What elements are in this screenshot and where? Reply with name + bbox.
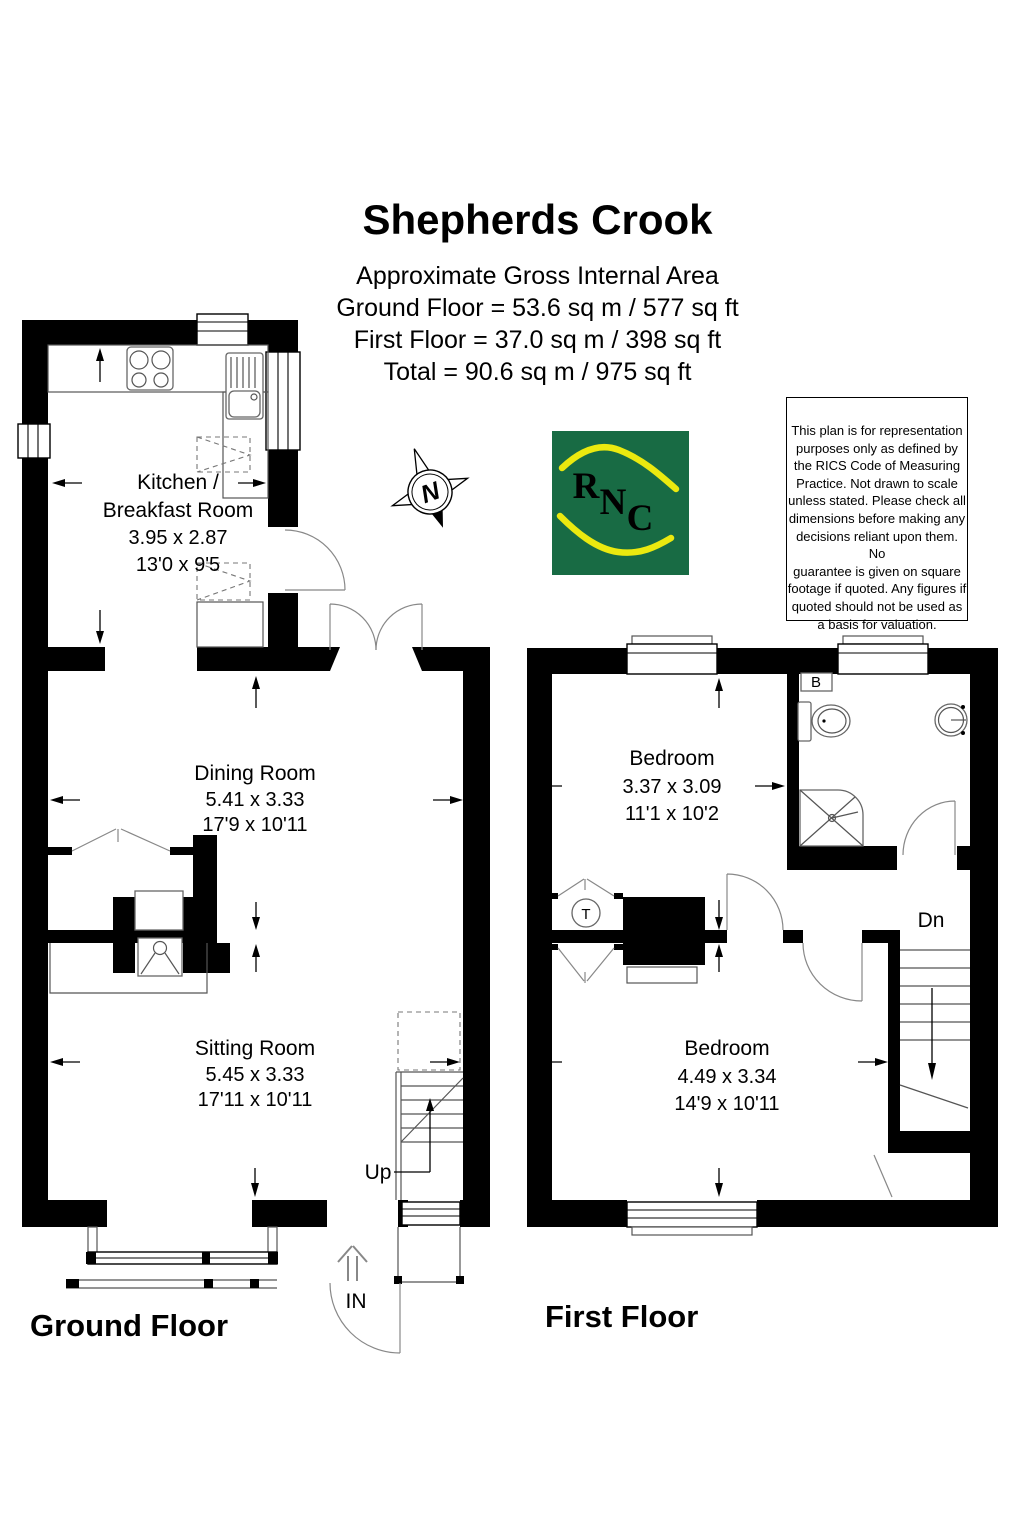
dining-room-label: Dining Room	[194, 762, 315, 785]
logo-letter-c: C	[627, 498, 654, 539]
understairs-door	[874, 1155, 892, 1197]
bathroom	[798, 673, 967, 855]
stairs-up	[394, 1012, 463, 1200]
compass-rose: N	[377, 435, 480, 539]
entrance-label: IN	[346, 1290, 367, 1313]
dining-room-imperial-dims: 17'9 x 10'11	[202, 814, 307, 836]
sitting-room-label: Sitting Room	[195, 1037, 315, 1060]
floorplan-drawing: R N C N	[0, 0, 1020, 1530]
logo-letter-r: R	[573, 466, 601, 507]
first-floor-plan: Bedroom 3.37 x 3.09 11'1 x 10'2 Bedroom …	[527, 636, 998, 1334]
bedroom2-imperial-dims: 14'9 x 10'11	[674, 1093, 779, 1115]
shower-icon	[800, 790, 863, 846]
french-doors	[330, 604, 422, 650]
bathroom-door	[903, 801, 955, 855]
stairs-up-label: Up	[365, 1161, 392, 1184]
toilet-icon	[798, 702, 850, 741]
bedroom2-metric-dims: 4.49 x 3.34	[678, 1066, 777, 1088]
logo-letter-n: N	[600, 482, 627, 523]
fireplace-icon	[138, 938, 182, 976]
bedroom1-label: Bedroom	[629, 747, 714, 770]
bedroom1-door	[727, 874, 783, 930]
ground-floor-label: Ground Floor	[30, 1308, 228, 1343]
sitting-room-metric-dims: 5.45 x 3.33	[206, 1064, 305, 1086]
porch-lines	[394, 1227, 464, 1284]
hob-icon	[127, 347, 173, 390]
entrance-arrow-icon	[338, 1246, 367, 1281]
tank-label: T	[581, 906, 590, 923]
boiler-label: B	[811, 674, 821, 691]
bay-window	[66, 1227, 278, 1288]
bedroom2-door	[803, 943, 862, 1001]
bedroom2-label: Bedroom	[684, 1037, 769, 1060]
dining-room-metric-dims: 5.41 x 3.33	[206, 789, 305, 811]
sitting-room-imperial-dims: 17'11 x 10'11	[198, 1089, 313, 1111]
kitchen-imperial-dims: 13'0 x 9'5	[136, 554, 220, 576]
kitchen-label-line1: Kitchen /	[137, 471, 219, 494]
shelf-outline	[627, 967, 697, 983]
kitchen-label-line2: Breakfast Room	[103, 499, 254, 522]
bedroom1-metric-dims: 3.37 x 3.09	[623, 776, 722, 798]
floorplan-page: Shepherds Crook Approximate Gross Intern…	[0, 0, 1020, 1530]
stairs-down	[900, 950, 970, 1108]
first-floor-label: First Floor	[545, 1299, 698, 1334]
stairs-down-label: Dn	[918, 909, 945, 932]
rnc-logo: R N C	[552, 431, 689, 575]
basin-icon	[935, 704, 967, 736]
kitchen-metric-dims: 3.95 x 2.87	[129, 527, 228, 549]
ground-floor-chimney	[48, 835, 230, 993]
kitchen-back-door	[285, 530, 345, 590]
sink-icon	[226, 353, 263, 419]
bifold-door-dining	[48, 829, 193, 855]
first-floor-walls	[527, 648, 998, 1227]
bedroom1-imperial-dims: 11'1 x 10'2	[625, 803, 719, 825]
